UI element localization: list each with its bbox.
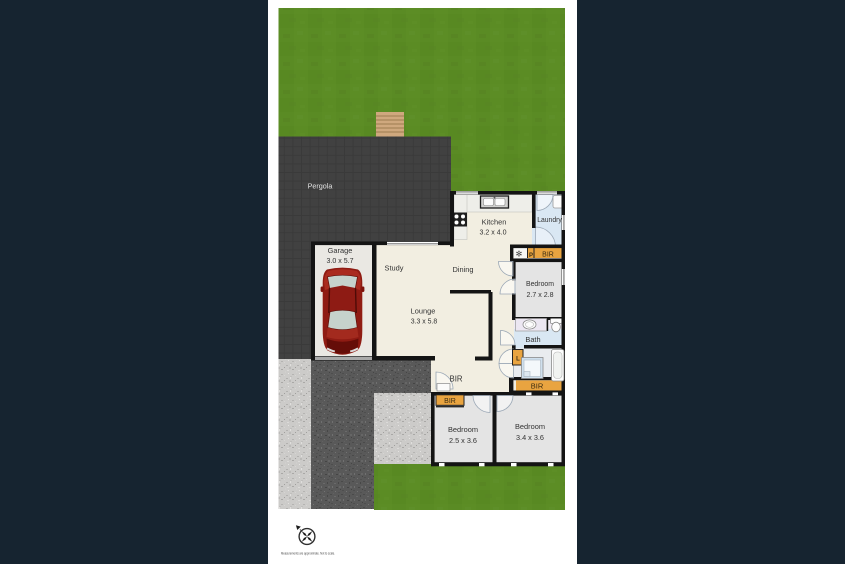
svg-text:Study: Study: [385, 264, 404, 273]
svg-text:Bedroom: Bedroom: [448, 425, 478, 434]
svg-text:Bath: Bath: [525, 335, 540, 344]
svg-text:✻: ✻: [516, 250, 523, 259]
svg-text:Kitchen: Kitchen: [482, 218, 507, 227]
svg-text:Bedroom: Bedroom: [526, 279, 554, 288]
svg-text:3.4 x 3.6: 3.4 x 3.6: [516, 433, 544, 442]
svg-text:Pergola: Pergola: [308, 182, 333, 191]
svg-text:3.3 x 5.8: 3.3 x 5.8: [411, 317, 438, 326]
svg-text:2.7 x 2.8: 2.7 x 2.8: [527, 290, 554, 299]
svg-text:BIR: BIR: [531, 382, 544, 391]
svg-text:Lounge: Lounge: [411, 307, 436, 316]
svg-text:Laundry: Laundry: [537, 217, 562, 224]
svg-text:2.5 x 3.6: 2.5 x 3.6: [449, 436, 477, 445]
svg-text:3.2 x 4.0: 3.2 x 4.0: [480, 228, 507, 237]
svg-text:BIR: BIR: [542, 252, 554, 259]
svg-text:BIR: BIR: [444, 398, 456, 405]
svg-text:Measurements are approximate.: Measurements are approximate. Not to sca…: [281, 552, 335, 556]
svg-text:Garage: Garage: [328, 246, 353, 255]
svg-text:Bedroom: Bedroom: [515, 422, 545, 431]
svg-text:Dining: Dining: [453, 265, 474, 274]
svg-text:3.0 x 5.7: 3.0 x 5.7: [327, 256, 354, 265]
svg-text:L: L: [516, 357, 520, 363]
svg-text:BIR: BIR: [450, 375, 463, 384]
